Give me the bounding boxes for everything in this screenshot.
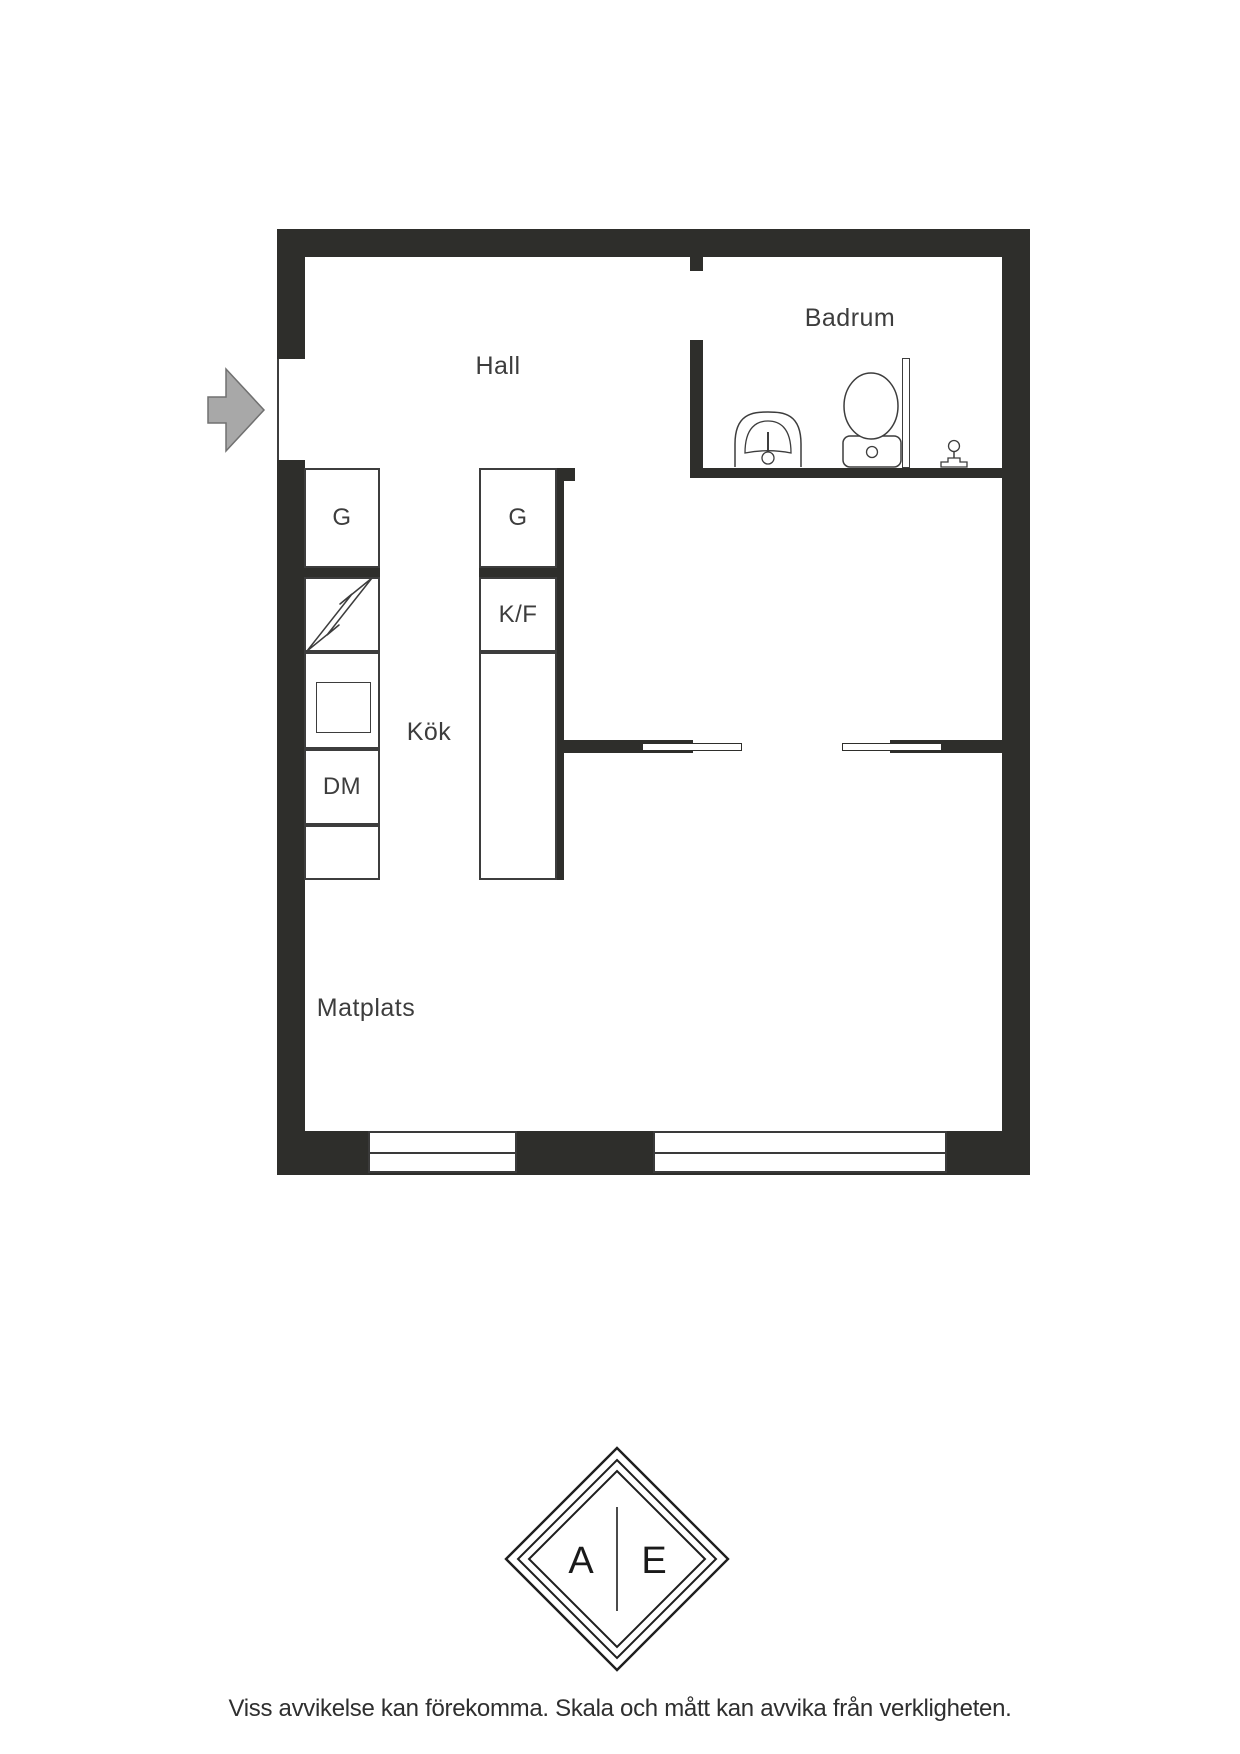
- window-right-midline: [654, 1152, 946, 1154]
- logo-letter-e: E: [641, 1540, 666, 1582]
- window-right: [653, 1131, 947, 1173]
- broker-logo: A E: [497, 1439, 737, 1679]
- left-column-separator: [304, 568, 380, 577]
- entrance-arrow-icon: [200, 360, 272, 456]
- entry-opening-line: [277, 359, 279, 460]
- room-label-hall: Hall: [438, 352, 558, 381]
- stove-lightning-icon: [304, 577, 380, 652]
- sink-icon: [728, 408, 808, 470]
- fridge-freezer-box: K/F: [479, 577, 557, 652]
- room-label-badrum: Badrum: [790, 304, 910, 333]
- room-label-kok: Kök: [369, 718, 489, 747]
- island-top-notch: [557, 468, 575, 481]
- wall-left-upper: [277, 229, 305, 359]
- counter-blank-box: [304, 825, 380, 880]
- island-tall-box: [479, 652, 557, 880]
- wardrobe-island-box: G: [479, 468, 557, 568]
- disclaimer-text: Viss avvikelse kan förekomma. Skala och …: [0, 1695, 1240, 1723]
- bathroom-left-wall: [690, 340, 703, 478]
- dishwasher-box: DM: [304, 749, 380, 825]
- logo-letter-a: A: [568, 1540, 594, 1582]
- oven-inner-square: [316, 682, 371, 733]
- bathroom-door-stub: [690, 257, 703, 271]
- room-label-matplats: Matplats: [296, 994, 436, 1023]
- sliding-door-left: [642, 743, 742, 751]
- sliding-door-right: [842, 743, 942, 751]
- wall-right: [1002, 229, 1030, 1175]
- island-right-wall: [557, 468, 564, 880]
- floor-drain-icon: [934, 434, 972, 470]
- window-left: [368, 1131, 517, 1173]
- wardrobe-left-label: G: [332, 504, 351, 532]
- wardrobe-left-box: G: [304, 468, 380, 568]
- wall-left-lower: [277, 460, 305, 1175]
- window-left-midline: [369, 1152, 516, 1154]
- floor-plan-page: G DM G K/F Hall Badrum Kök Matplats: [0, 0, 1240, 1754]
- island-separator: [479, 568, 564, 577]
- toilet-icon: [838, 368, 908, 470]
- fridge-freezer-label: K/F: [499, 601, 538, 629]
- wall-top: [277, 229, 1030, 257]
- shower-glass-icon: [902, 358, 910, 468]
- wardrobe-island-label: G: [508, 504, 527, 532]
- dishwasher-label: DM: [323, 773, 361, 801]
